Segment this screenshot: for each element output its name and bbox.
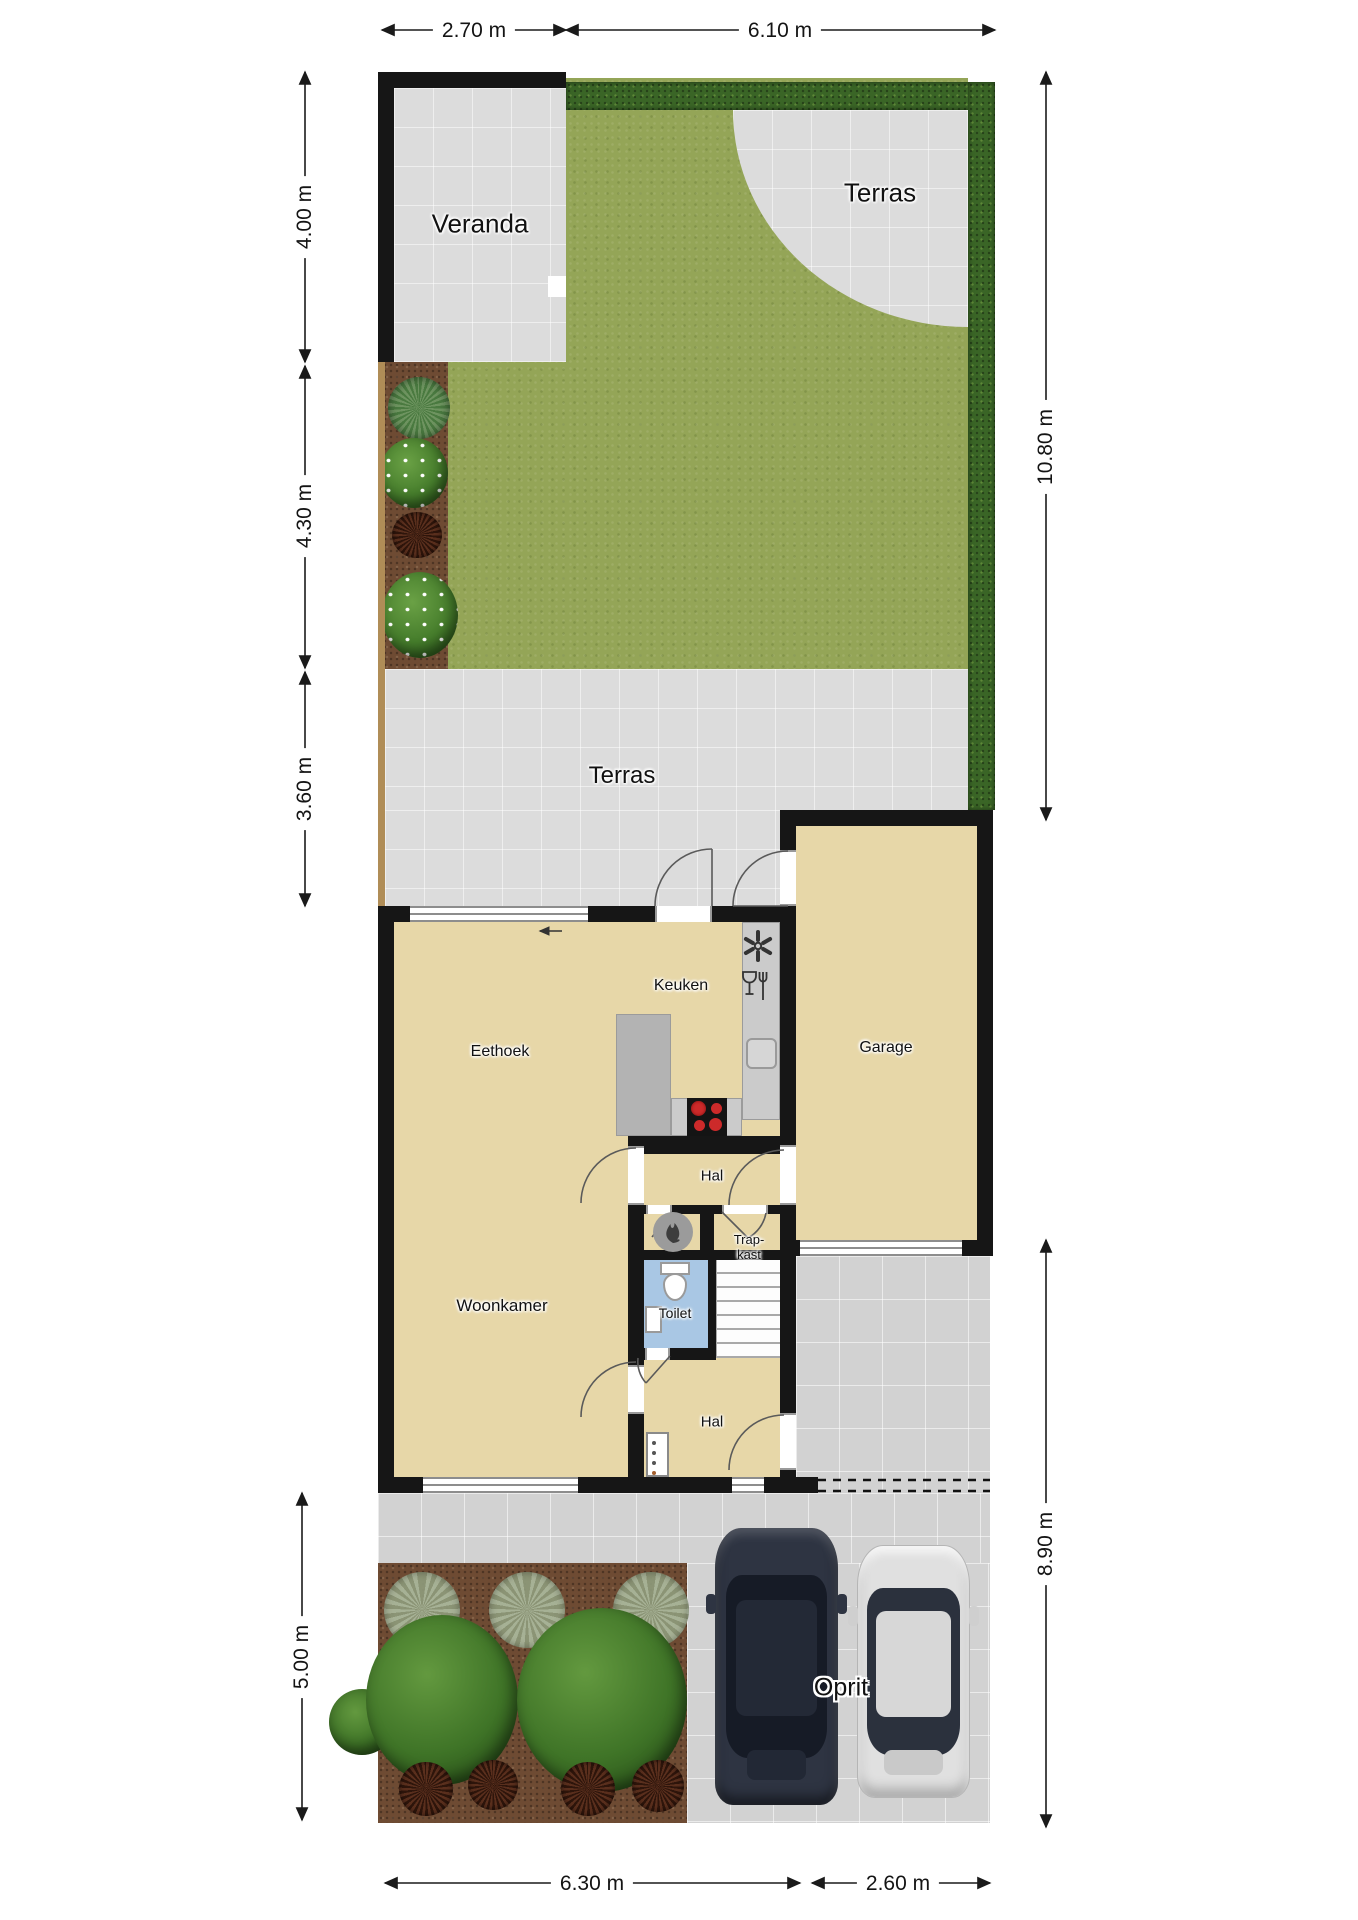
red-spiky-plant [392,512,442,558]
hedge-top [566,82,995,110]
toilet-wall-bottom [628,1348,716,1360]
kitchen-sink [746,1038,777,1069]
red-spiky-plant [561,1762,615,1816]
indicator-dot [652,1471,656,1475]
veranda-wall-top [378,72,566,88]
cooktop-4-burners [687,1098,727,1136]
dim-bottom-1: 6.30 m [551,1871,633,1897]
door-living-hall-opening [628,1365,644,1414]
dim-top-left: 2.70 m [433,18,515,44]
indicator-dot [652,1441,656,1445]
garage-floor [796,826,977,1240]
front-door-opening [780,1413,796,1470]
car-light [857,1545,970,1798]
dim-right-2: 8.90 m [1033,1503,1059,1585]
cv-trapkast-divider [700,1214,714,1250]
car-mirror [848,1606,858,1626]
fern-plant [388,377,450,439]
indicator-dot [652,1461,656,1465]
hedge-right [968,82,995,810]
label-trapkast-line2: kast [734,1247,765,1262]
burner [711,1103,722,1114]
veranda-wall-left [378,72,394,362]
flower-bush [380,438,448,508]
label-eethoek: Eethoek [471,1043,530,1061]
terrace-middle-lower [385,810,780,907]
door-cv-opening [646,1205,672,1214]
kitchen-hall-wall [628,1136,780,1154]
door-hall-garage-opening [780,1145,796,1205]
door-trapkast-opening [722,1205,768,1214]
veranda-post [548,276,566,297]
dim-bottom-2: 2.60 m [857,1871,939,1897]
label-woonkamer: Woonkamer [456,1296,547,1316]
staircase [716,1260,780,1358]
red-spiky-plant [632,1760,684,1812]
dim-left-2: 4.30 m [292,475,318,557]
meter-cabinet [646,1432,669,1477]
terrace-middle [385,669,968,810]
dim-left-1: 4.00 m [292,176,318,258]
label-oprit: Oprit [814,1674,868,1703]
label-hal-entry: Hal [701,1414,724,1431]
car-mirror [969,1606,979,1626]
label-veranda: Veranda [432,209,529,240]
toilet-stairs-wall [708,1260,716,1360]
dim-left-4: 5.00 m [289,1616,315,1698]
car-hood [884,1750,943,1775]
burner [694,1120,705,1131]
car-mirror [706,1594,716,1614]
dim-top-right: 6.10 m [739,18,821,44]
label-terrace-top: Terras [844,178,916,209]
garage-door-front [800,1240,962,1256]
label-hal-middle: Hal [701,1168,724,1185]
red-spiky-plant [468,1760,518,1810]
indicator-dot [652,1451,656,1455]
garage-wall-right [977,810,993,1256]
car-hood [747,1750,806,1780]
door-toilet-opening [645,1348,670,1360]
window-living-front [423,1477,578,1493]
dim-right-1: 10.80 m [1033,400,1059,494]
label-trapkast: Trap- kast [734,1232,765,1262]
fence-left [378,362,385,907]
floor-plan: Veranda Terras Terras Keuken Eethoek Gar… [0,0,1358,1920]
car-roof [876,1611,951,1717]
flower-bush [382,572,458,658]
living-area-floor [394,922,780,1477]
window-hall-front [732,1477,764,1493]
door-dining-hall-opening [628,1146,644,1205]
window-dining-garden [410,906,588,922]
dim-left-3: 3.60 m [292,748,318,830]
burner [709,1118,722,1131]
house-wall-left [378,922,394,1493]
car-dark [715,1528,838,1805]
label-trapkast-line1: Trap- [734,1232,765,1247]
red-spiky-plant [399,1762,453,1816]
driveway-right [796,1256,990,1493]
car-roof [736,1600,817,1716]
door-terrace-opening [655,906,712,922]
door-garage-side-opening [780,850,796,906]
car-mirror [837,1594,847,1614]
label-terrace-middle: Terras [589,762,656,790]
label-keuken: Keuken [654,977,708,995]
label-garage: Garage [859,1039,912,1057]
burner [691,1101,706,1116]
garage-wall-top [780,810,993,826]
label-toilet: Toilet [659,1305,692,1321]
kitchen-counter-right [742,922,780,1120]
kitchen-island [616,1014,671,1136]
